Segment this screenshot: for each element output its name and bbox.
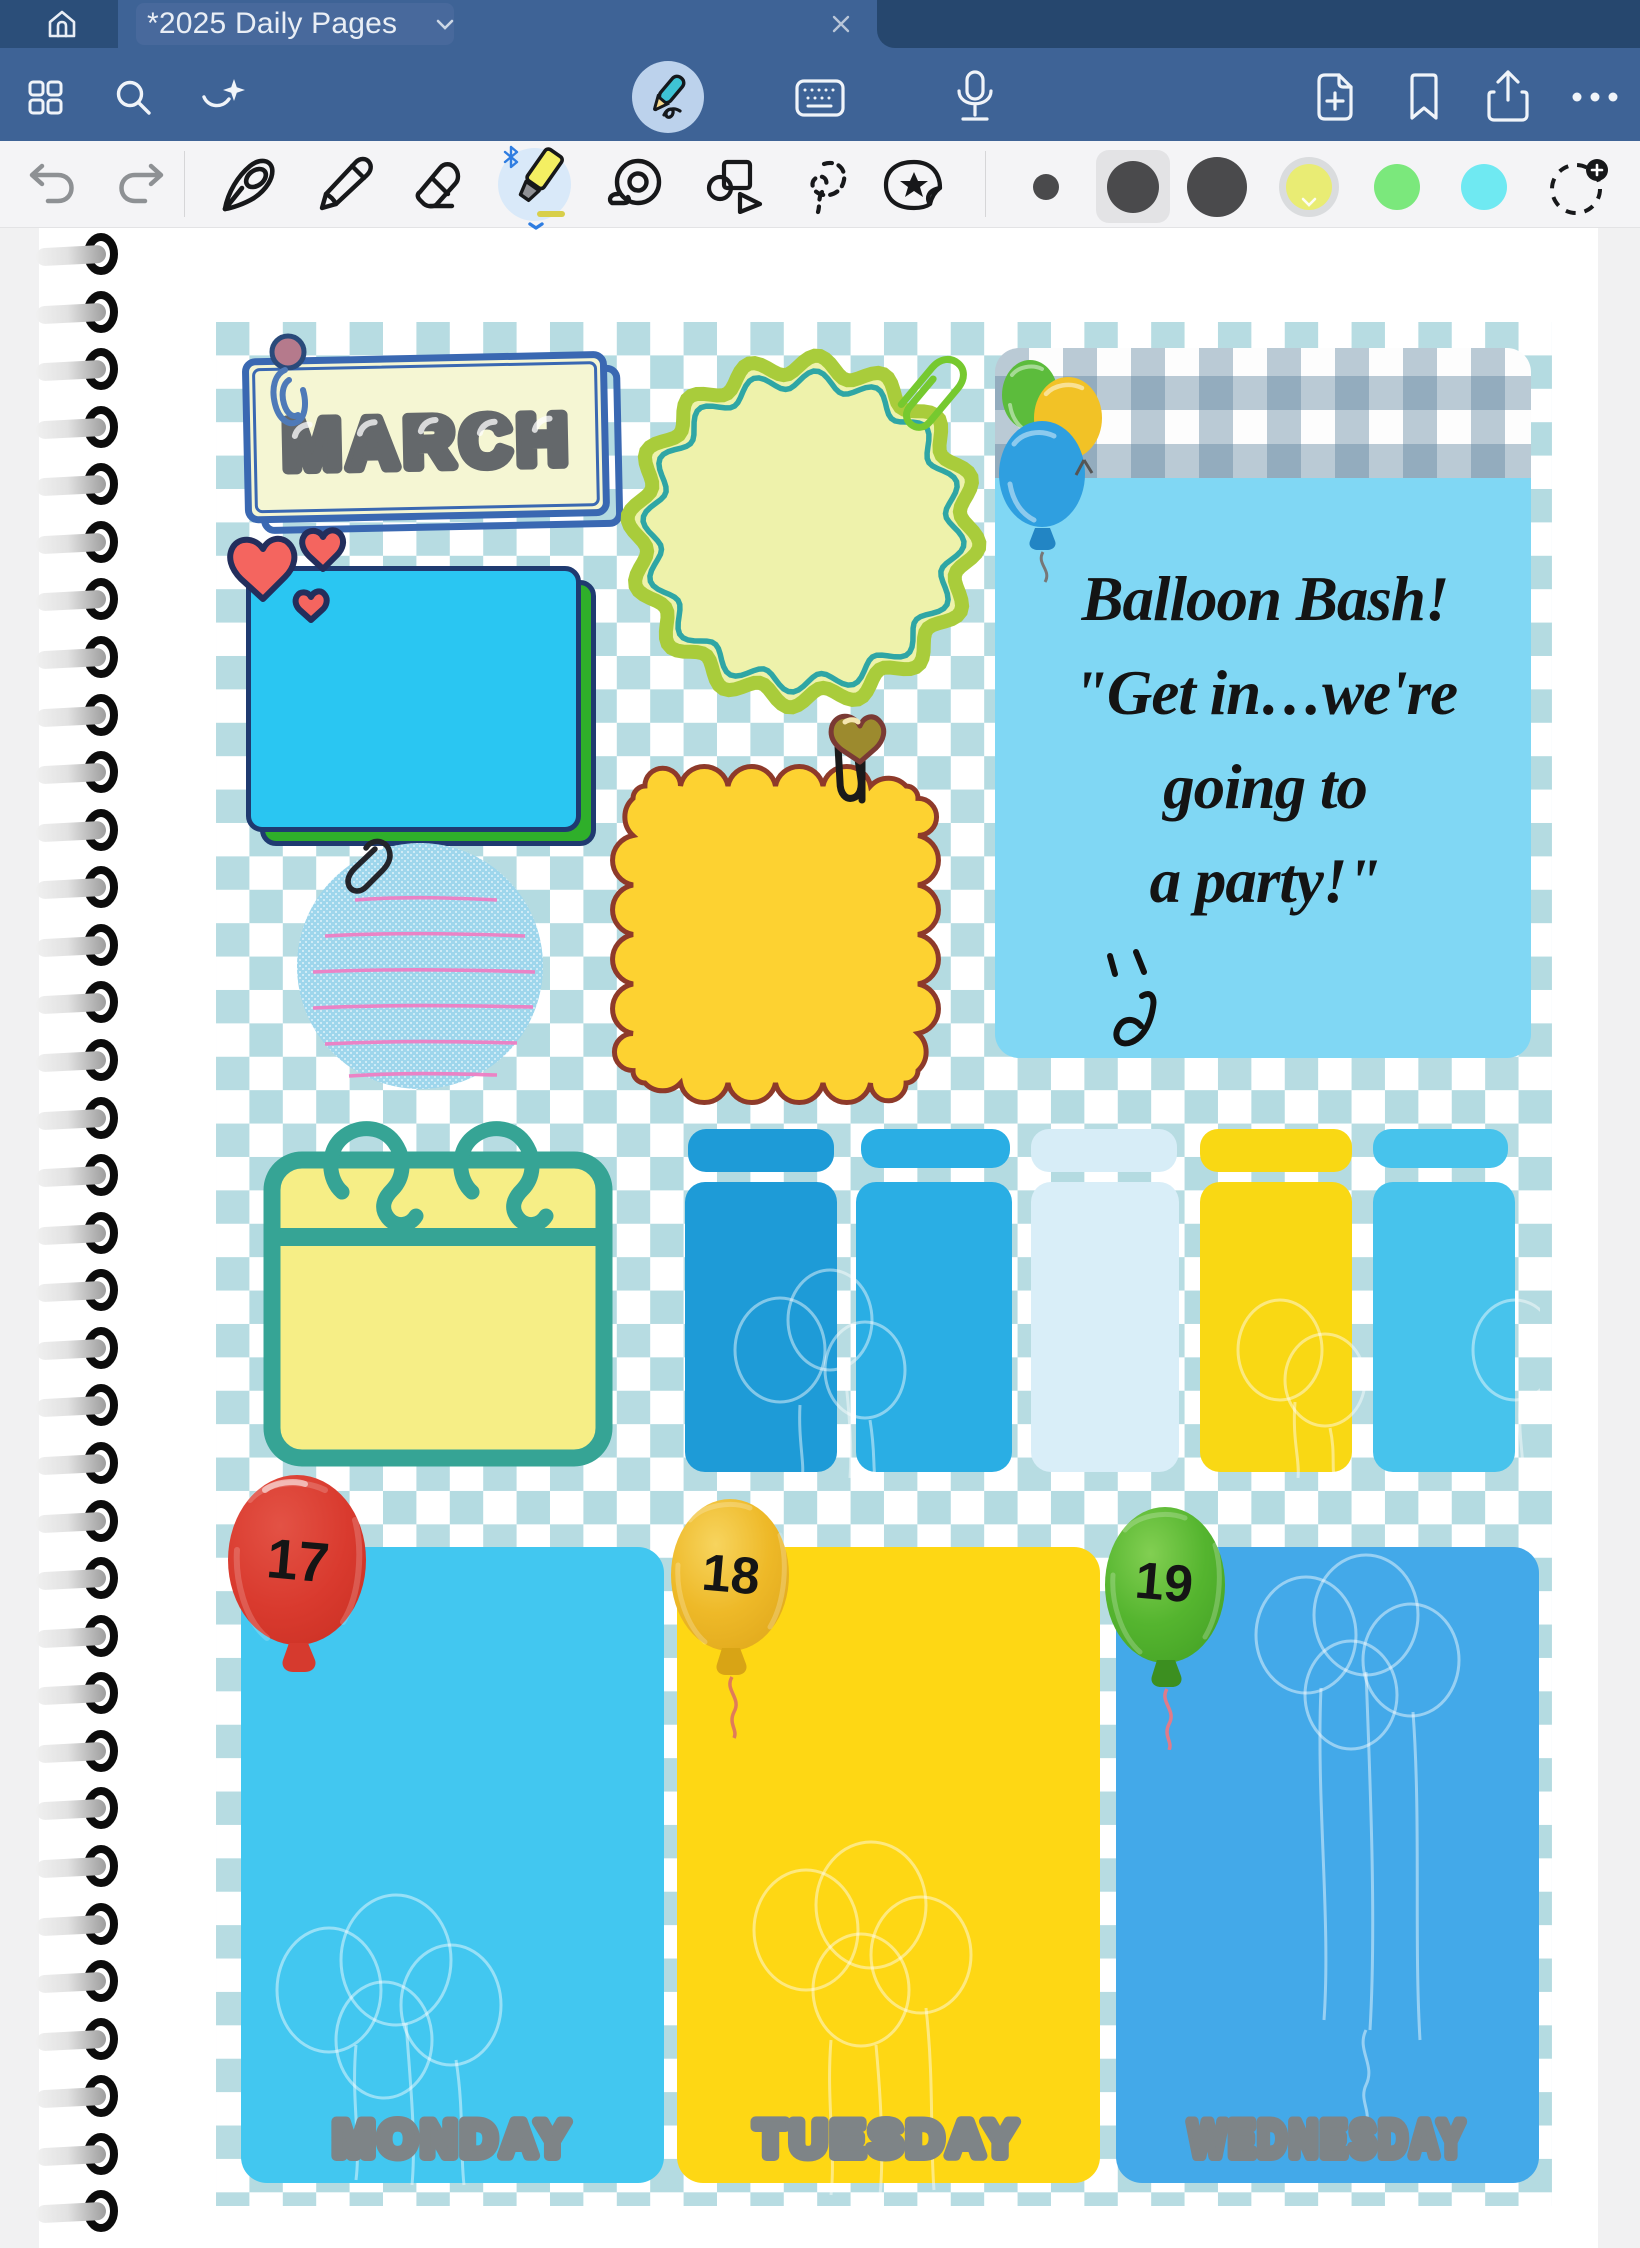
svg-text:TUESDAY: TUESDAY (755, 2111, 1021, 2167)
svg-text:19: 19 (1133, 1552, 1196, 1615)
svg-text:WEDNESDAY: WEDNESDAY (1189, 2111, 1467, 2167)
svg-text:MARCH: MARCH (282, 400, 574, 484)
svg-text:18: 18 (700, 1544, 763, 1607)
svg-text:MONDAY: MONDAY (333, 2111, 573, 2167)
svg-text:17: 17 (264, 1526, 332, 1594)
